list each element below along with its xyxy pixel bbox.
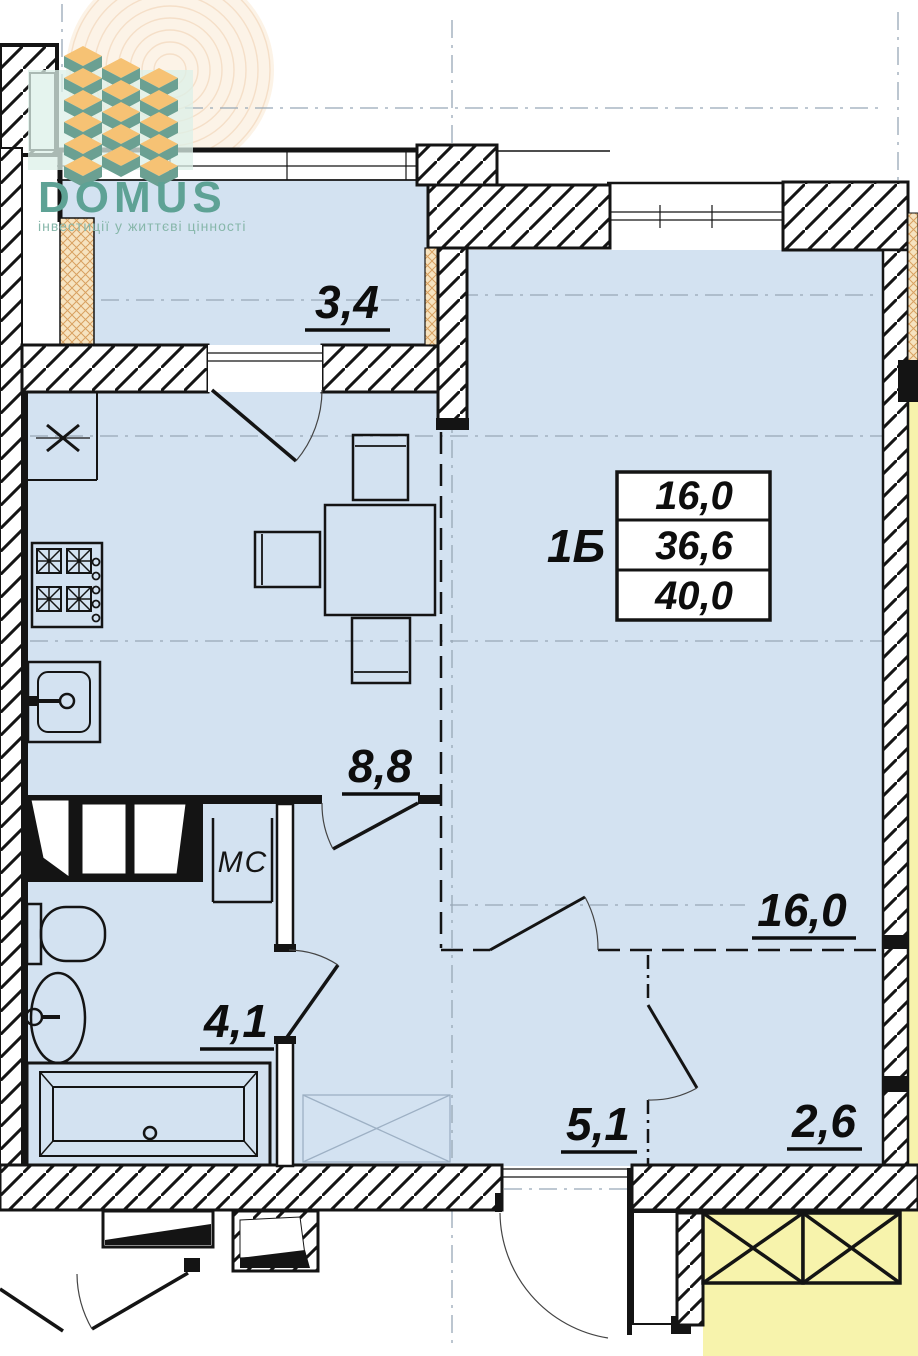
table-value-living: 16,0 xyxy=(655,474,733,518)
insulation-left xyxy=(60,218,94,345)
table-value-net: 36,6 xyxy=(655,524,734,568)
wall-left-outer xyxy=(0,148,22,1210)
wall-below-balcony-left xyxy=(22,345,208,392)
insulation-pier xyxy=(425,248,438,345)
room-area-bathroom: 4,1 xyxy=(203,995,268,1047)
shaft-cross-boxes xyxy=(703,1213,900,1283)
wall-bottom-left xyxy=(0,1165,502,1210)
table-value-total: 40,0 xyxy=(654,574,733,618)
pier-balcony-living xyxy=(438,248,467,420)
room-area-balcony: 3,4 xyxy=(315,276,379,328)
logo-brand-text: DOMUS xyxy=(38,173,227,222)
wall-below-balcony-right xyxy=(322,345,438,392)
corridor-shaft-b xyxy=(233,1211,318,1271)
floor-plan-svg: 16,0 36,6 40,0 1Б 3,4 8,8 16,0 4,1 5,1 2… xyxy=(0,0,918,1356)
room-area-living: 16,0 xyxy=(757,884,847,936)
pier-top-right xyxy=(783,182,908,250)
pier-step xyxy=(417,145,497,185)
room-area-hallway: 5,1 xyxy=(566,1098,630,1150)
vent-shaft-block xyxy=(27,795,203,882)
room-area-kitchen: 8,8 xyxy=(348,740,412,792)
room-area-loggia: 2,6 xyxy=(791,1095,856,1147)
pier-top-band xyxy=(428,185,610,248)
insulation-right xyxy=(908,213,918,363)
wall-bottom-right xyxy=(632,1165,918,1210)
washing-machine-label: МС xyxy=(218,846,269,879)
corridor-shaft-a xyxy=(103,1211,213,1247)
entrance-door xyxy=(500,1213,608,1338)
unit-type-label: 1Б xyxy=(547,520,605,572)
corridor-wall-strip xyxy=(677,1213,703,1325)
neighbor-entrance-door xyxy=(0,1273,188,1331)
floorplan-canvas: 16,0 36,6 40,0 1Б 3,4 8,8 16,0 4,1 5,1 2… xyxy=(0,0,918,1356)
logo-tagline-text: інвестиції у життєві цінності xyxy=(38,218,246,234)
